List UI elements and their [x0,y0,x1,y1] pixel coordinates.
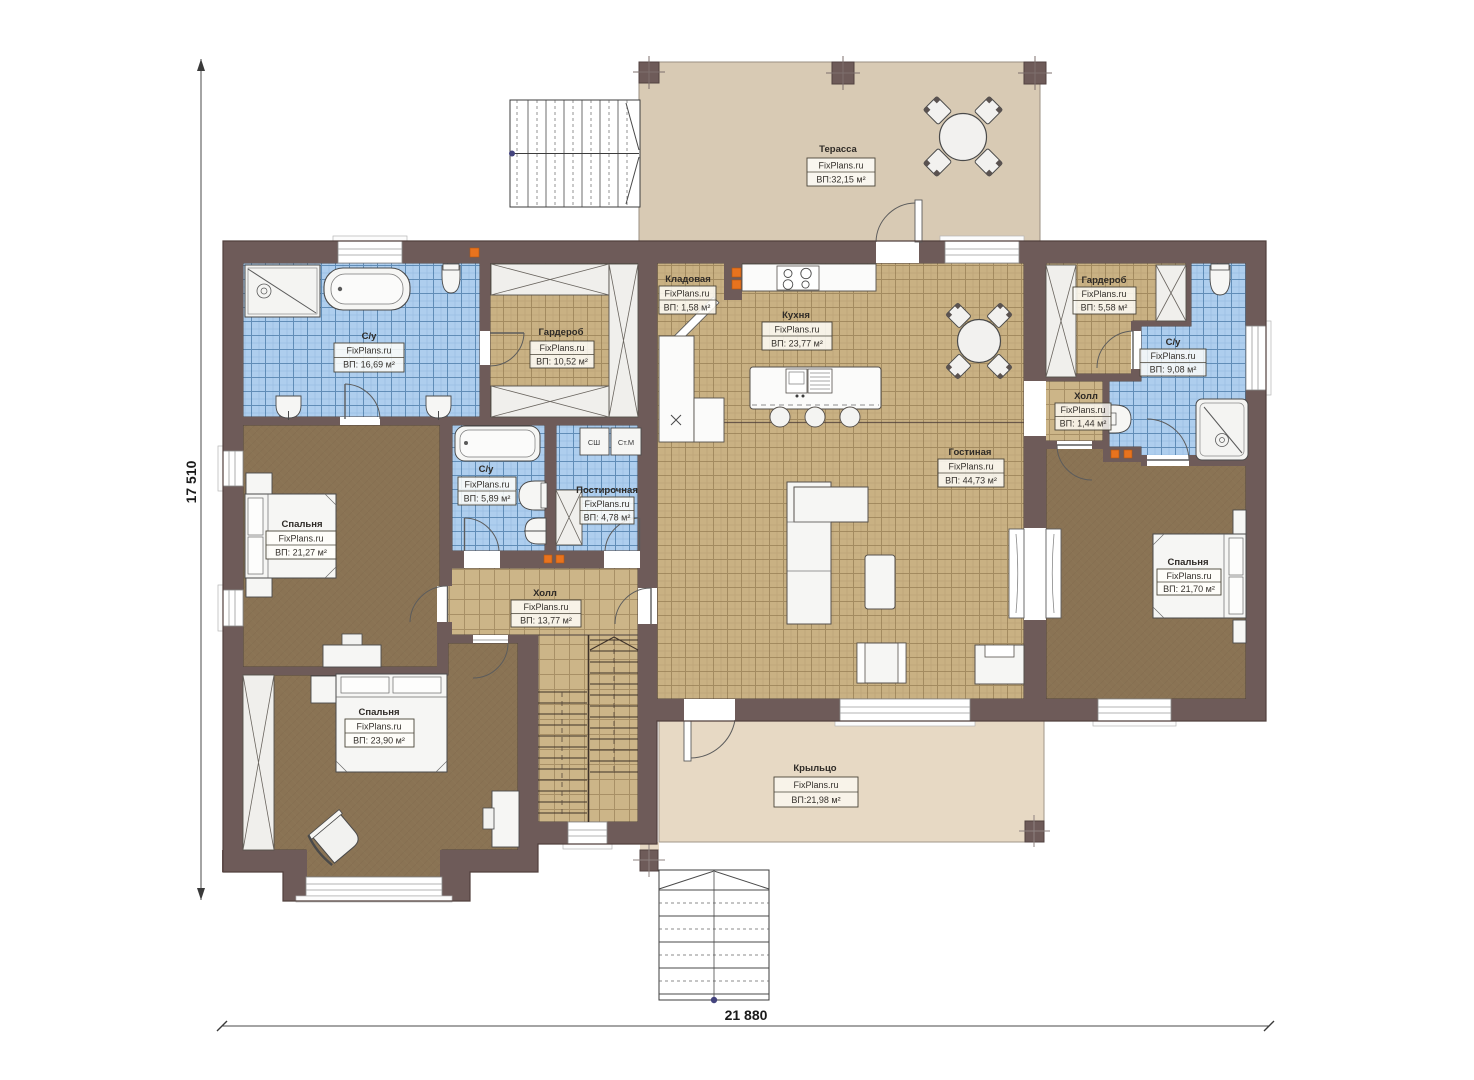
svg-text:17 510: 17 510 [183,460,199,503]
svg-text:FixPlans.ru: FixPlans.ru [346,346,391,356]
svg-text:Гардероб: Гардероб [539,327,584,338]
svg-text:FixPlans.ru: FixPlans.ru [356,722,401,732]
svg-text:ВП:21,98 м²: ВП:21,98 м² [791,795,840,805]
svg-text:Кухня: Кухня [782,310,810,321]
svg-text:FixPlans.ru: FixPlans.ru [1081,289,1126,299]
svg-text:FixPlans.ru: FixPlans.ru [664,289,709,299]
svg-text:ВП: 13,77 м²: ВП: 13,77 м² [520,616,572,626]
svg-text:ВП: 5,58 м²: ВП: 5,58 м² [1081,303,1128,313]
svg-text:FixPlans.ru: FixPlans.ru [539,343,584,353]
svg-text:FixPlans.ru: FixPlans.ru [793,780,838,790]
svg-text:FixPlans.ru: FixPlans.ru [464,480,509,490]
svg-text:ВП: 10,52 м²: ВП: 10,52 м² [536,357,588,367]
svg-text:Ст.М: Ст.М [618,438,634,447]
svg-text:FixPlans.ru: FixPlans.ru [584,499,629,509]
svg-text:ВП: 16,69 м²: ВП: 16,69 м² [343,360,395,370]
svg-text:С/у: С/у [479,464,495,475]
svg-text:ВП: 4,78 м²: ВП: 4,78 м² [584,513,631,523]
svg-text:Крыльцо: Крыльцо [793,763,836,774]
svg-text:С/у: С/у [362,331,378,342]
svg-text:ВП: 23,77 м²: ВП: 23,77 м² [771,339,823,349]
svg-text:Холл: Холл [1074,391,1098,402]
svg-text:ВП: 44,73 м²: ВП: 44,73 м² [945,476,997,486]
svg-text:СШ: СШ [588,438,600,447]
svg-text:ВП: 9,08 м²: ВП: 9,08 м² [1150,365,1197,375]
svg-text:ВП: 5,89 м²: ВП: 5,89 м² [464,494,511,504]
svg-text:Кладовая: Кладовая [665,274,711,285]
svg-text:FixPlans.ru: FixPlans.ru [948,462,993,472]
svg-text:ВП: 1,58 м²: ВП: 1,58 м² [664,303,711,313]
svg-text:FixPlans.ru: FixPlans.ru [1166,571,1211,581]
svg-text:Гостиная: Гостиная [949,447,992,458]
svg-text:Гардероб: Гардероб [1082,275,1127,286]
svg-text:Холл: Холл [533,588,557,599]
svg-text:FixPlans.ru: FixPlans.ru [1060,405,1105,415]
svg-text:FixPlans.ru: FixPlans.ru [278,534,323,544]
svg-text:С/у: С/у [1166,337,1182,348]
svg-text:ВП: 21,27 м²: ВП: 21,27 м² [275,548,327,558]
svg-text:ВП:32,15 м²: ВП:32,15 м² [816,175,865,185]
svg-text:FixPlans.ru: FixPlans.ru [523,602,568,612]
svg-text:FixPlans.ru: FixPlans.ru [818,161,863,171]
svg-text:FixPlans.ru: FixPlans.ru [774,325,819,335]
svg-text:Спальня: Спальня [358,707,399,718]
svg-text:Спальня: Спальня [1167,557,1208,568]
svg-text:Постирочная: Постирочная [576,485,638,496]
svg-text:Спальня: Спальня [281,519,322,530]
svg-text:21 880: 21 880 [725,1007,768,1023]
svg-text:FixPlans.ru: FixPlans.ru [1150,351,1195,361]
svg-text:ВП: 23,90 м²: ВП: 23,90 м² [353,736,405,746]
svg-text:Терасса: Терасса [819,144,857,155]
svg-text:ВП: 21,70 м²: ВП: 21,70 м² [1163,584,1215,594]
svg-text:ВП: 1,44 м²: ВП: 1,44 м² [1060,419,1107,429]
